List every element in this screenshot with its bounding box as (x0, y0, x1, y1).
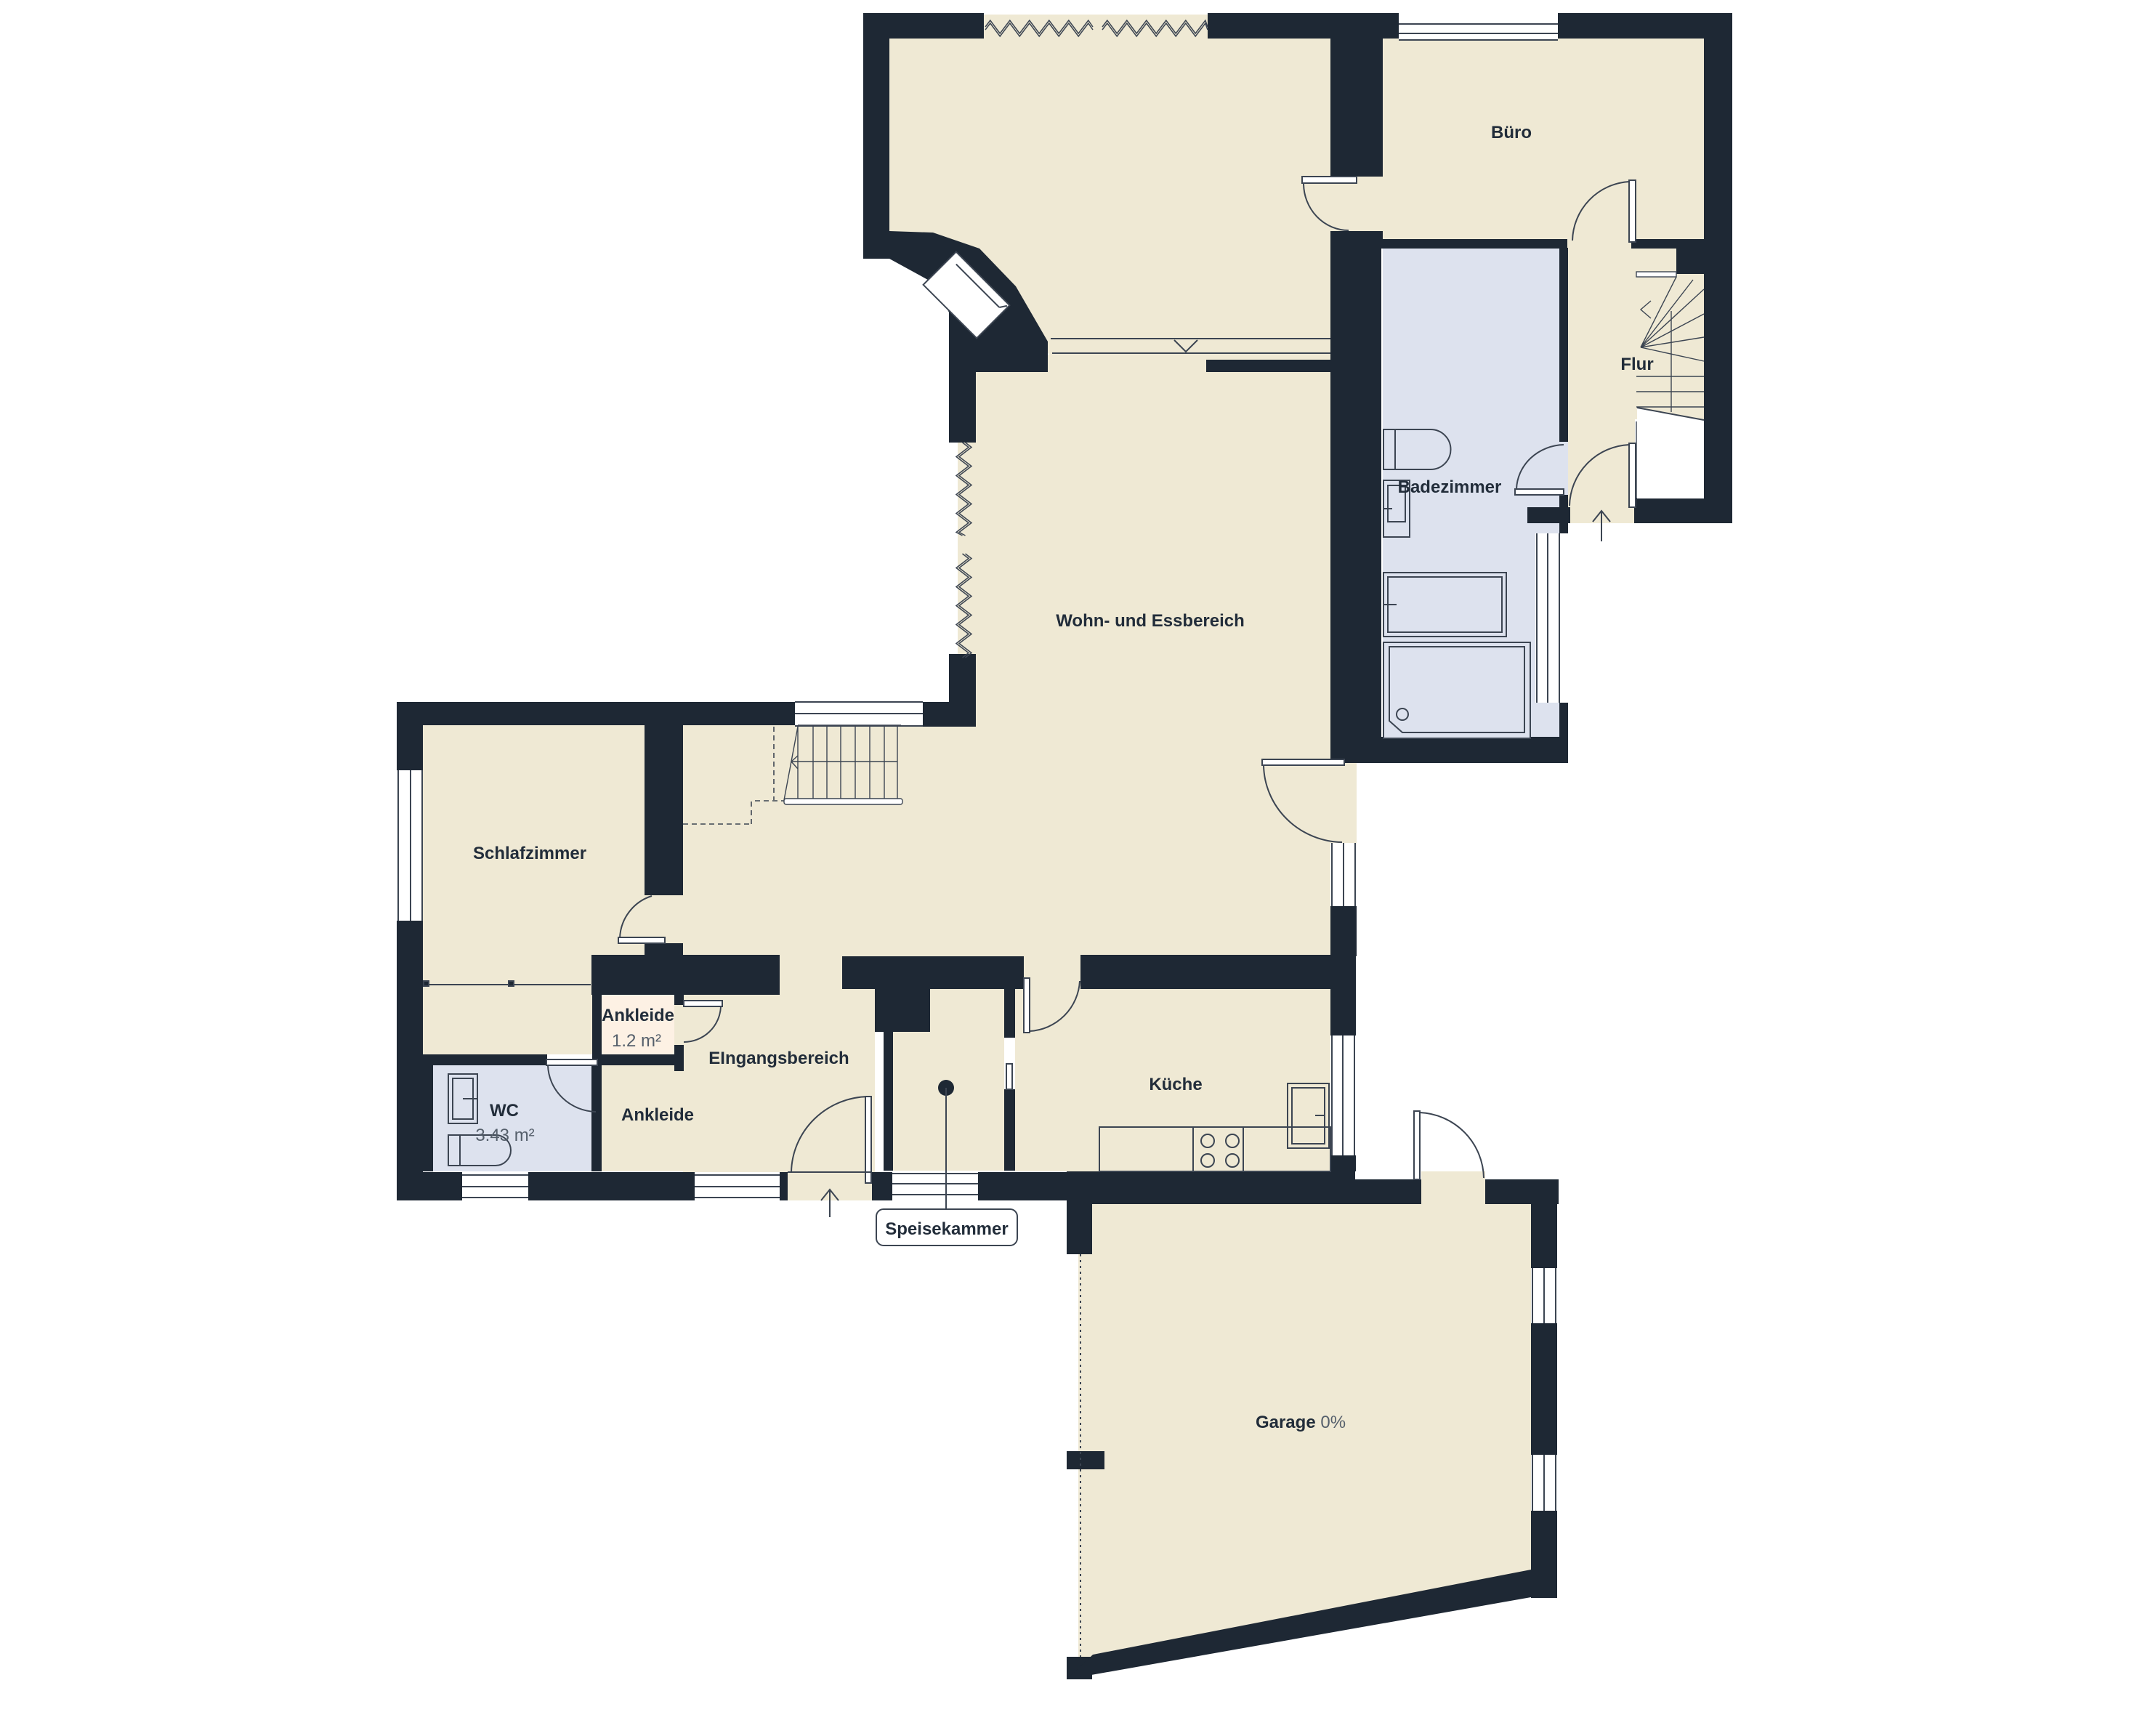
svg-text:Flur: Flur (1620, 355, 1653, 374)
svg-text:Büro: Büro (1491, 123, 1532, 142)
svg-text:Badezimmer: Badezimmer (1398, 477, 1502, 497)
svg-text:3.43 m²: 3.43 m² (475, 1126, 534, 1145)
svg-text:Wohn- und Essbereich: Wohn- und Essbereich (1056, 611, 1245, 631)
svg-text:EIngangsbereich: EIngangsbereich (708, 1049, 849, 1068)
svg-text:Ankleide: Ankleide (602, 1006, 674, 1025)
svg-text:Ankleide: Ankleide (621, 1105, 694, 1125)
svg-text:Schlafzimmer: Schlafzimmer (473, 844, 586, 863)
svg-text:1.2 m²: 1.2 m² (612, 1031, 661, 1051)
svg-text:Küche: Küche (1149, 1075, 1202, 1094)
svg-text:Garage 0%: Garage 0% (1256, 1413, 1346, 1432)
svg-text:Speisekammer: Speisekammer (885, 1219, 1008, 1239)
svg-text:WC: WC (490, 1101, 519, 1121)
